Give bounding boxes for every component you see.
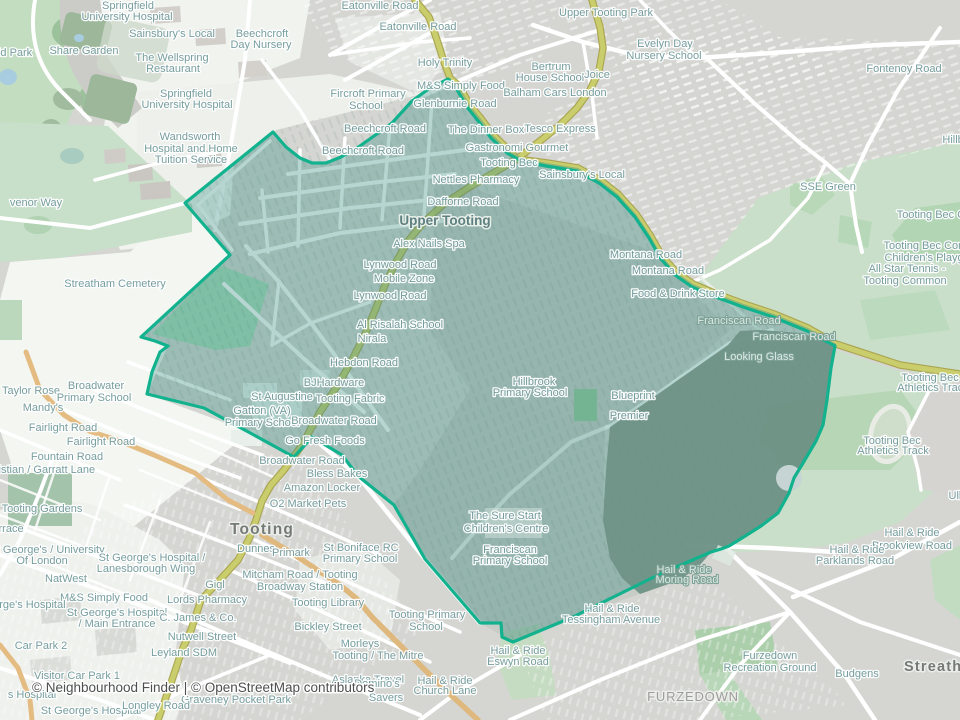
svg-text:Bless Bakes: Bless Bakes [307, 468, 368, 480]
svg-text:Taylor Rose: Taylor Rose [2, 385, 60, 397]
svg-text:Mandy's: Mandy's [23, 402, 64, 414]
svg-text:Primary School: Primary School [57, 392, 132, 404]
svg-text:Looking Glass: Looking Glass [724, 351, 794, 363]
svg-text:Tooting Bec Co: Tooting Bec Co [897, 209, 960, 221]
svg-text:Blueprint: Blueprint [611, 390, 654, 402]
svg-text:Lynwood Road: Lynwood Road [364, 259, 437, 271]
svg-text:Church Lane: Church Lane [414, 685, 477, 697]
svg-text:Broadwater Road: Broadwater Road [259, 455, 345, 467]
svg-text:Fontenoy Road: Fontenoy Road [866, 63, 941, 75]
svg-text:Tooting Library: Tooting Library [292, 597, 365, 609]
svg-text:Budgens: Budgens [835, 668, 879, 680]
svg-text:Mitcham Road / Tooting: Mitcham Road / Tooting [242, 569, 357, 581]
svg-text:© Neighbourhood Finder | © Ope: © Neighbourhood Finder | © OpenStreetMap… [32, 680, 375, 695]
svg-text:Evelyn Day: Evelyn Day [637, 38, 693, 50]
svg-text:Sainsbury's Local: Sainsbury's Local [129, 28, 215, 40]
svg-text:Nirala: Nirala [358, 333, 388, 345]
svg-text:School: School [349, 100, 383, 112]
svg-text:Parklands Road: Parklands Road [816, 555, 894, 567]
svg-text:venor Way: venor Way [10, 197, 63, 209]
svg-text:Tuition Service: Tuition Service [155, 154, 227, 166]
svg-text:Alex Nails Spa: Alex Nails Spa [393, 238, 465, 250]
svg-text:Upper Tooting: Upper Tooting [399, 213, 490, 228]
svg-text:Moring Road: Moring Road [656, 574, 719, 586]
svg-text:Primary School: Primary School [323, 553, 398, 565]
svg-text:Montana Road: Montana Road [610, 249, 682, 261]
svg-text:O2 Market Pets: O2 Market Pets [270, 498, 347, 510]
svg-text:Hillbro: Hillbro [942, 134, 960, 146]
svg-text:Beechcroft Road: Beechcroft Road [344, 123, 426, 135]
svg-text:Wandsworth: Wandsworth [160, 131, 221, 143]
svg-text:BJHardware: BJHardware [304, 377, 365, 389]
svg-text:Fairlight Road: Fairlight Road [67, 436, 135, 448]
svg-text:Go Fresh Foods: Go Fresh Foods [285, 435, 365, 447]
svg-text:Tooting Primary: Tooting Primary [389, 609, 466, 621]
svg-text:Food & Drink Store: Food & Drink Store [631, 288, 725, 300]
svg-text:errace: errace [0, 523, 24, 535]
svg-text:Car Park 2: Car Park 2 [15, 640, 68, 652]
svg-text:Primary School: Primary School [473, 555, 548, 567]
svg-text:Day Nursery: Day Nursery [230, 39, 292, 51]
svg-text:Montana Road: Montana Road [632, 265, 704, 277]
svg-text:Eswyn Road: Eswyn Road [487, 656, 549, 668]
svg-text:Gatton (VA): Gatton (VA) [233, 405, 290, 417]
svg-text:Glenburnie Road: Glenburnie Road [413, 98, 496, 110]
svg-text:Bickley Street: Bickley Street [294, 621, 361, 633]
svg-text:Lords Pharmacy: Lords Pharmacy [167, 594, 248, 606]
svg-text:Leyland SDM: Leyland SDM [151, 647, 217, 659]
svg-text:Beechcroft Road: Beechcroft Road [322, 145, 404, 157]
svg-text:Al Risalah School: Al Risalah School [357, 319, 443, 331]
svg-text:Nettles Pharmacy: Nettles Pharmacy [433, 174, 520, 186]
svg-text:Athletics Track: Athletics Track [897, 382, 960, 394]
svg-text:Primary School: Primary School [493, 387, 568, 399]
svg-text:Tooting Bec Comm: Tooting Bec Comm [884, 240, 960, 252]
svg-text:Furzedown: Furzedown [743, 650, 797, 662]
svg-text:Tooting Fabric: Tooting Fabric [315, 393, 385, 405]
svg-text:M&S Simply Food: M&S Simply Food [60, 592, 148, 604]
svg-text:Longley Road: Longley Road [122, 700, 190, 712]
svg-text:Amazon Locker: Amazon Locker [284, 482, 361, 494]
svg-text:Nutwell Street: Nutwell Street [168, 631, 236, 643]
svg-text:Sainsbury's Local: Sainsbury's Local [539, 169, 625, 181]
svg-text:Holy Trinity: Holy Trinity [418, 57, 473, 69]
svg-text:Fircroft Primary: Fircroft Primary [330, 88, 406, 100]
svg-text:Lanesborough Wing: Lanesborough Wing [97, 563, 195, 575]
svg-text:Morleys: Morleys [341, 638, 380, 650]
svg-text:Tooting Common: Tooting Common [863, 275, 946, 287]
svg-text:Hebdon Road: Hebdon Road [330, 357, 398, 369]
svg-text:Streatham: Streatham [904, 659, 960, 675]
svg-text:NatWest: NatWest [45, 573, 87, 585]
svg-text:Fairlight Road: Fairlight Road [29, 422, 97, 434]
svg-text:Nursery School: Nursery School [626, 50, 701, 62]
svg-text:Joice: Joice [584, 69, 610, 81]
svg-text:Graveney Pocket Park: Graveney Pocket Park [181, 694, 292, 706]
svg-text:Tooting / The Mitre: Tooting / The Mitre [333, 650, 424, 662]
svg-text:Balham Cars London: Balham Cars London [503, 87, 606, 99]
svg-text:George's Hospital: George's Hospital [0, 599, 66, 611]
svg-text:Mobile Zone: Mobile Zone [374, 273, 435, 285]
svg-text:The Sure Start: The Sure Start [469, 510, 541, 522]
svg-text:Dunnes: Dunnes [237, 543, 275, 555]
svg-text:Recreation Ground: Recreation Ground [724, 662, 817, 674]
svg-text:SSE Green: SSE Green [800, 181, 856, 193]
svg-text:Lynwood Road: Lynwood Road [354, 290, 427, 302]
svg-text:Eatonville Road: Eatonville Road [379, 21, 456, 33]
svg-text:All Star Tennis -: All Star Tennis - [869, 263, 946, 275]
svg-text:FURZEDOWN: FURZEDOWN [647, 689, 739, 704]
svg-text:/ Main Entrance: / Main Entrance [78, 618, 155, 630]
svg-text:Tessingham Avenue: Tessingham Avenue [562, 614, 660, 626]
svg-text:Tooting: Tooting [230, 521, 294, 538]
svg-text:Tesco Express: Tesco Express [524, 123, 596, 135]
svg-text:Ulla: Ulla [949, 490, 960, 502]
svg-text:Broadway Station: Broadway Station [257, 581, 343, 593]
svg-text:Dafforne Road: Dafforne Road [427, 196, 498, 208]
svg-text:Upper Tooting Park: Upper Tooting Park [559, 7, 653, 19]
svg-text:Streatham Cemetery: Streatham Cemetery [64, 278, 166, 290]
svg-text:House School: House School [516, 72, 585, 84]
svg-text:University Hospital: University Hospital [81, 11, 172, 23]
svg-text:Broadwater Road: Broadwater Road [291, 415, 377, 427]
svg-text:Franciscan Road: Franciscan Road [752, 331, 835, 343]
svg-text:Franciscan Road: Franciscan Road [697, 315, 780, 327]
svg-text:Share Garden: Share Garden [49, 45, 118, 57]
svg-text:University Hospital: University Hospital [141, 99, 232, 111]
svg-text:eld Park: eld Park [0, 47, 33, 59]
svg-text:Restaurant: Restaurant [146, 63, 200, 75]
svg-text:Broadwater: Broadwater [68, 380, 125, 392]
svg-text:Eatonville Road: Eatonville Road [341, 0, 418, 12]
svg-text:Athletics Track: Athletics Track [857, 445, 929, 457]
svg-text:School: School [409, 621, 443, 633]
svg-text:St Augustine: St Augustine [251, 391, 313, 403]
svg-text:Christian / Garratt Lane: Christian / Garratt Lane [0, 464, 95, 476]
svg-text:Primary School: Primary School [225, 417, 300, 429]
svg-text:Fountain Road: Fountain Road [31, 451, 103, 463]
svg-text:Primark: Primark [272, 547, 310, 559]
svg-text:Tooting Bec: Tooting Bec [480, 157, 538, 169]
svg-text:The Dinner Box: The Dinner Box [448, 124, 525, 136]
svg-text:Children's Centre: Children's Centre [464, 523, 549, 535]
svg-text:Premier: Premier [610, 410, 649, 422]
svg-text:Tooting Gardens: Tooting Gardens [2, 503, 83, 515]
svg-text:Of London: Of London [16, 555, 67, 567]
svg-text:Gastronomi Gourmet: Gastronomi Gourmet [466, 142, 569, 154]
svg-text:M&S Simply Food: M&S Simply Food [417, 80, 505, 92]
svg-text:C. James & Co.: C. James & Co. [159, 612, 236, 624]
svg-text:Hail & Ride: Hail & Ride [884, 527, 939, 539]
svg-text:Gigl: Gigl [205, 579, 225, 591]
